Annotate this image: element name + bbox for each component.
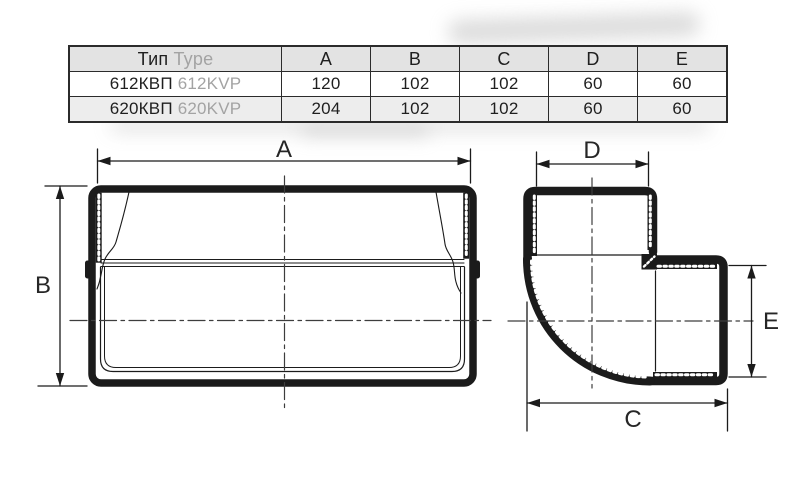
dim-label-e: E (763, 308, 779, 335)
elbow-hatch-dots (532, 196, 716, 377)
dim-label-a: A (276, 136, 292, 163)
ridge-left (85, 261, 91, 279)
elbow-view-drawing: D E C (508, 137, 779, 433)
elbow-curve-wall (528, 259, 651, 381)
dim-label-b: B (35, 272, 51, 299)
duct-body-outline (92, 189, 473, 383)
dim-label-c: C (624, 406, 641, 433)
elbow-top-duct (528, 191, 654, 263)
page: Тип Type A B C D E 612КВП 612KVP 120 102… (0, 0, 800, 500)
elbow-right-duct (649, 260, 724, 382)
front-view-drawing: A B (35, 136, 491, 408)
elbow-hatch-strips (532, 194, 718, 378)
technical-drawing: A B (0, 0, 800, 500)
elbow-socket-lines (532, 255, 656, 371)
dim-label-d: D (583, 137, 600, 164)
centerlines-elbow (508, 178, 753, 388)
ridge-right (475, 261, 481, 279)
